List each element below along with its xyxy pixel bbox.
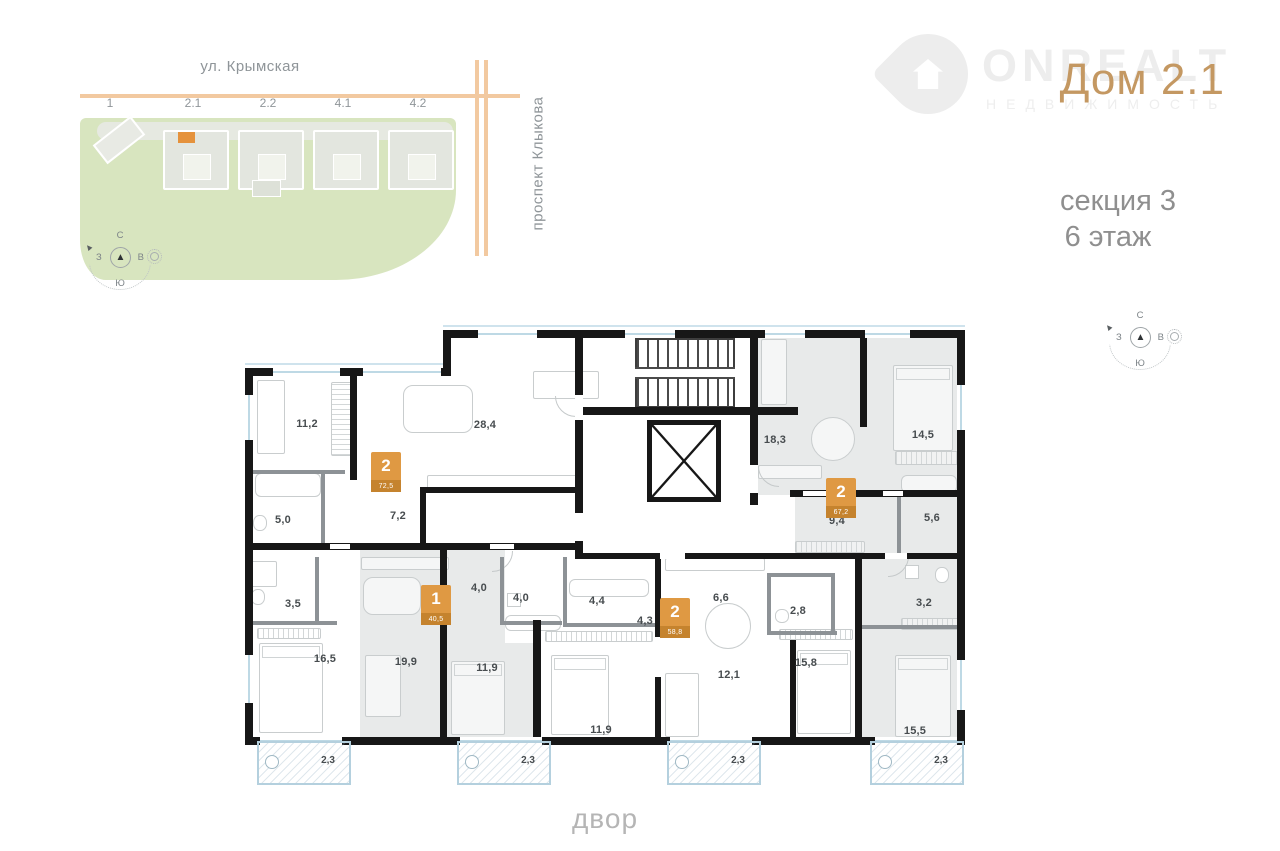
house-icon bbox=[913, 59, 943, 89]
room-area-label: 4,3 bbox=[637, 615, 653, 627]
sofa bbox=[533, 371, 599, 399]
plant-icon bbox=[675, 755, 689, 769]
wall bbox=[790, 640, 796, 737]
toilet bbox=[251, 589, 265, 605]
room-area-label: 6,6 bbox=[713, 592, 729, 604]
partition bbox=[500, 621, 562, 625]
wardrobe bbox=[545, 631, 653, 642]
apartment-fill-sold bbox=[502, 643, 536, 738]
toilet bbox=[253, 515, 267, 531]
partition bbox=[315, 557, 319, 625]
wall bbox=[245, 543, 583, 550]
room-area-label: 4,0 bbox=[471, 582, 487, 594]
apartment-area: 67,2 bbox=[826, 506, 856, 518]
site-map: ул. Крымская 1 2.1 2.2 4.1 4.2 ▲ С Ю З В… bbox=[75, 50, 567, 285]
compass-rose: ▲ С Ю З В ▲ bbox=[85, 222, 155, 292]
sitemap-building-2-1[interactable] bbox=[163, 130, 229, 190]
balcony: 2,3 bbox=[257, 741, 351, 785]
room-area-label: 7,2 bbox=[390, 510, 406, 522]
wall bbox=[533, 620, 541, 737]
plant-icon bbox=[265, 755, 279, 769]
house-title: Дом 2.1 bbox=[1015, 55, 1225, 105]
wall bbox=[420, 487, 580, 493]
onrealt-logo-icon bbox=[871, 17, 984, 130]
bathtub bbox=[569, 579, 649, 597]
sofa bbox=[761, 339, 787, 405]
apartment-badge[interactable]: 2 72,5 bbox=[371, 452, 401, 492]
room-area-label: 11,9 bbox=[590, 724, 612, 736]
wall bbox=[420, 487, 426, 543]
room-area-label: 15,5 bbox=[904, 725, 926, 737]
selected-section-marker bbox=[178, 132, 195, 143]
apartment-rooms-count: 2 bbox=[371, 452, 401, 480]
washing-machine bbox=[905, 565, 919, 579]
apartment-badge[interactable]: 2 58,8 bbox=[660, 598, 690, 638]
dining-table bbox=[403, 385, 473, 433]
wardrobe bbox=[257, 628, 321, 639]
sofa bbox=[665, 673, 699, 737]
room-area-label: 28,4 bbox=[474, 419, 496, 431]
partition bbox=[767, 631, 837, 635]
room-area-label: 11,9 bbox=[476, 662, 498, 674]
window bbox=[625, 330, 675, 338]
sofa bbox=[257, 380, 285, 454]
window bbox=[765, 330, 805, 338]
building-label-4-2: 4.2 bbox=[410, 96, 427, 110]
balcony-area-label: 2,3 bbox=[521, 755, 535, 766]
wall bbox=[860, 330, 867, 427]
apartment-rooms-count: 2 bbox=[660, 598, 690, 626]
door-opening bbox=[490, 544, 514, 549]
apartment-area: 72,5 bbox=[371, 480, 401, 492]
street-line-horizontal bbox=[80, 94, 520, 98]
window bbox=[957, 385, 965, 430]
wall bbox=[583, 407, 798, 415]
facade-line bbox=[245, 363, 451, 365]
wardrobe bbox=[795, 541, 865, 553]
street-name-top: ул. Крымская bbox=[170, 58, 330, 75]
kitchen-counter bbox=[665, 558, 765, 571]
compass-west: З bbox=[96, 252, 102, 263]
wall bbox=[855, 555, 862, 737]
wall bbox=[655, 677, 661, 737]
door-opening bbox=[660, 553, 685, 559]
balcony: 2,3 bbox=[870, 741, 964, 785]
room-area-label: 2,8 bbox=[790, 605, 806, 617]
room-area-label: 4,0 bbox=[513, 592, 529, 604]
room-area-label: 5,0 bbox=[275, 514, 291, 526]
toilet bbox=[775, 609, 789, 623]
window bbox=[273, 368, 340, 376]
sitemap-building-4-2[interactable] bbox=[388, 130, 454, 190]
window bbox=[363, 368, 441, 376]
room-area-label: 14,5 bbox=[912, 429, 934, 441]
wall bbox=[245, 737, 965, 745]
wardrobe bbox=[895, 451, 959, 465]
staircase bbox=[635, 338, 735, 408]
balcony: 2,3 bbox=[457, 741, 551, 785]
compass-east: В bbox=[1158, 332, 1164, 343]
apartment-area: 58,8 bbox=[660, 626, 690, 638]
sun-icon bbox=[1170, 332, 1179, 341]
door-opening bbox=[803, 491, 827, 496]
room-area-label: 4,4 bbox=[589, 595, 605, 607]
courtyard bbox=[258, 154, 286, 180]
room-area-label: 15,8 bbox=[795, 657, 817, 669]
building-label-4-1: 4.1 bbox=[335, 96, 352, 110]
apartment-area: 40,5 bbox=[421, 613, 451, 625]
street-name-right: проспект Клыкова bbox=[530, 74, 547, 254]
door-opening bbox=[750, 465, 758, 493]
balcony-area-label: 2,3 bbox=[321, 755, 335, 766]
room-area-label: 3,2 bbox=[916, 597, 932, 609]
yard-label: двор bbox=[520, 803, 690, 835]
outbuilding bbox=[252, 180, 281, 197]
partition bbox=[897, 497, 901, 553]
building-label-1: 1 bbox=[107, 96, 114, 110]
apartment-rooms-count: 1 bbox=[421, 585, 451, 613]
wall bbox=[350, 368, 357, 480]
courtyard bbox=[183, 154, 211, 180]
plant-icon bbox=[878, 755, 892, 769]
room-area-label: 11,2 bbox=[296, 418, 318, 430]
compass-arrow-icon: ▲ bbox=[1102, 320, 1115, 333]
plant-icon bbox=[465, 755, 479, 769]
apartment-badge[interactable]: 1 40,5 bbox=[421, 585, 451, 625]
compass-east: В bbox=[138, 252, 144, 263]
window bbox=[245, 655, 253, 703]
compass-west: З bbox=[1116, 332, 1122, 343]
apartment-rooms-count: 2 bbox=[826, 478, 856, 506]
wall bbox=[440, 550, 447, 737]
room-area-label: 3,5 bbox=[285, 598, 301, 610]
bed bbox=[551, 655, 609, 735]
shower bbox=[251, 561, 277, 587]
floor-plan: 2,3 2,3 2,3 2,3 11,2 28,4 5,0 7,2 3,5 16… bbox=[245, 325, 965, 790]
compass-north: С bbox=[1137, 310, 1144, 321]
section-label: секция 3 bbox=[1033, 185, 1203, 218]
compass-rose: ▲ С Ю З В ▲ bbox=[1105, 302, 1175, 372]
facade-line bbox=[443, 325, 965, 327]
balcony: 2,3 bbox=[667, 741, 761, 785]
window bbox=[957, 660, 965, 710]
room-area-label: 16,5 bbox=[314, 653, 336, 665]
door-opening bbox=[885, 553, 907, 559]
elevator-shaft bbox=[647, 420, 721, 502]
building-label-2-2: 2.2 bbox=[260, 96, 277, 110]
street-line-vertical bbox=[484, 60, 488, 256]
partition bbox=[855, 625, 959, 629]
apartment-badge[interactable]: 2 67,2 bbox=[826, 478, 856, 518]
partition bbox=[245, 470, 345, 474]
partition bbox=[767, 573, 835, 577]
dining-table bbox=[705, 603, 751, 649]
room-area-label: 5,6 bbox=[924, 512, 940, 524]
bathtub bbox=[255, 473, 321, 497]
toilet bbox=[935, 567, 949, 583]
building-label-2-1: 2.1 bbox=[185, 96, 202, 110]
window bbox=[478, 330, 537, 338]
dining-table bbox=[811, 417, 855, 461]
balcony-area-label: 2,3 bbox=[934, 755, 948, 766]
partition bbox=[767, 573, 771, 635]
courtyard bbox=[333, 154, 361, 180]
compass-north: С bbox=[117, 230, 124, 241]
sitemap-building-4-1[interactable] bbox=[313, 130, 379, 190]
door-opening bbox=[330, 544, 350, 549]
dining-table bbox=[363, 577, 421, 615]
sun-icon bbox=[150, 252, 159, 261]
door-opening bbox=[575, 513, 583, 541]
window bbox=[245, 395, 253, 440]
partition bbox=[321, 470, 325, 547]
door-opening bbox=[575, 395, 583, 420]
stair-landing bbox=[635, 367, 735, 379]
door-opening bbox=[883, 491, 903, 496]
room-area-label: 18,3 bbox=[764, 434, 786, 446]
floor-label: 6 этаж bbox=[1023, 221, 1193, 254]
partition bbox=[245, 621, 337, 625]
room-area-label: 12,1 bbox=[718, 669, 740, 681]
kitchen-counter bbox=[361, 557, 449, 570]
room-area-label: 19,9 bbox=[395, 656, 417, 668]
partition bbox=[500, 557, 504, 623]
street-line-vertical bbox=[475, 60, 479, 256]
partition bbox=[831, 573, 835, 635]
courtyard bbox=[408, 154, 436, 180]
window bbox=[865, 330, 910, 338]
balcony-area-label: 2,3 bbox=[731, 755, 745, 766]
partition bbox=[563, 557, 567, 627]
